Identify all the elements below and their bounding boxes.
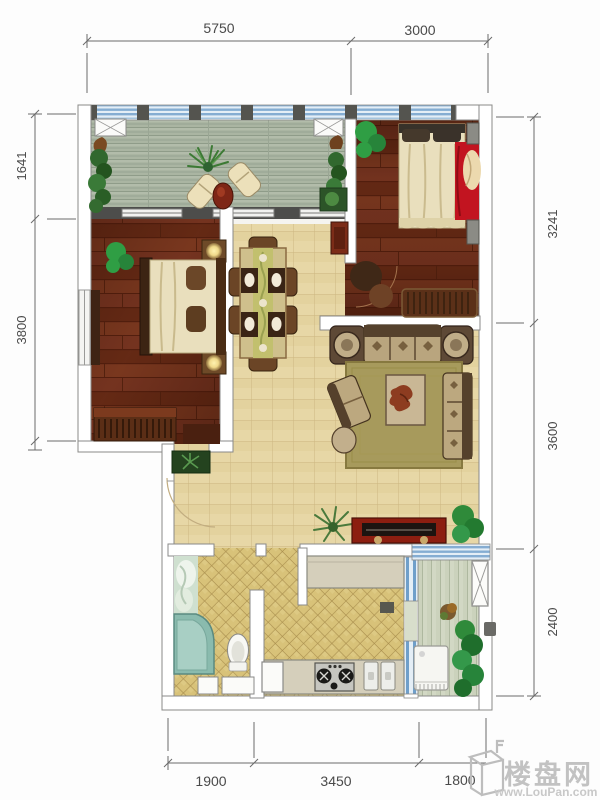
svg-text:5750: 5750	[203, 20, 234, 36]
svg-text:1900: 1900	[195, 773, 226, 789]
svg-text:www.LouPan.com: www.LouPan.com	[494, 785, 598, 799]
svg-text:1641: 1641	[14, 152, 29, 181]
svg-text:2400: 2400	[545, 608, 560, 637]
svg-text:3241: 3241	[545, 210, 560, 239]
svg-text:3800: 3800	[14, 316, 29, 345]
svg-text:3450: 3450	[320, 773, 351, 789]
svg-text:3600: 3600	[545, 422, 560, 451]
svg-text:3000: 3000	[404, 22, 435, 38]
